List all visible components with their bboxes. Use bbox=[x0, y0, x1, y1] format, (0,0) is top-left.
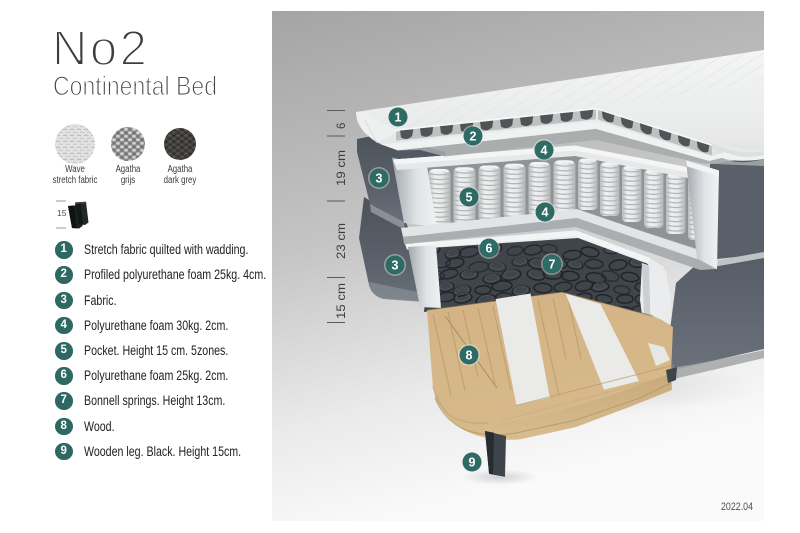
svg-text:6: 6 bbox=[336, 123, 348, 129]
svg-text:23 cm: 23 cm bbox=[336, 223, 348, 259]
svg-text:1: 1 bbox=[395, 111, 402, 125]
svg-text:4: 4 bbox=[541, 144, 548, 158]
svg-text:15: 15 bbox=[57, 208, 67, 218]
svg-text:4: 4 bbox=[542, 206, 549, 220]
svg-text:19 cm: 19 cm bbox=[336, 150, 348, 186]
svg-text:9: 9 bbox=[469, 456, 476, 470]
svg-text:2: 2 bbox=[470, 130, 477, 144]
svg-text:3: 3 bbox=[376, 172, 383, 186]
svg-text:6: 6 bbox=[486, 242, 493, 256]
svg-text:15 cm: 15 cm bbox=[336, 283, 348, 319]
svg-text:7: 7 bbox=[549, 258, 556, 272]
svg-text:3: 3 bbox=[392, 259, 399, 273]
svg-text:2022.04: 2022.04 bbox=[721, 501, 753, 513]
svg-text:8: 8 bbox=[466, 349, 473, 363]
svg-text:5: 5 bbox=[466, 191, 473, 205]
